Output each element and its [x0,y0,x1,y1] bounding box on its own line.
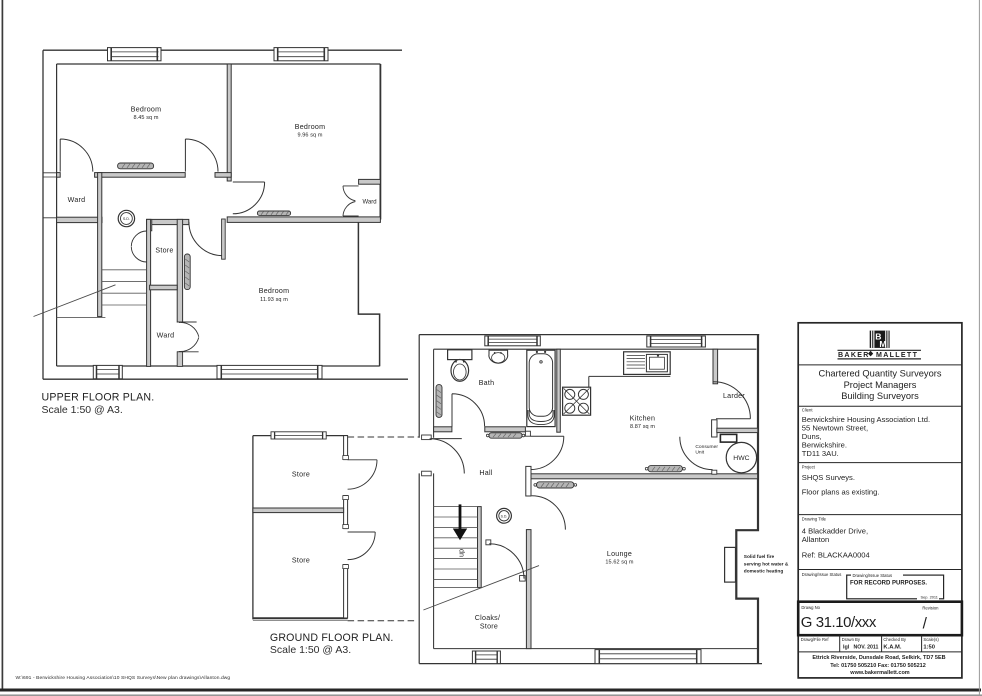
svg-text:Floor plans as existing.: Floor plans as existing. [802,488,880,497]
svg-text:Bedroom: Bedroom [259,287,290,295]
svg-text:Tel: 01750 505210 Fax: 01: Tel: 01750 505210 Fax: 01750 505212 [830,663,926,669]
svg-text:Cloaks/: Cloaks/ [475,614,500,622]
svg-text:Kitchen: Kitchen [630,415,655,423]
svg-text:Drawing/Issue Status: Drawing/Issue Status [802,572,842,577]
svg-text:9.96 sq m: 9.96 sq m [297,133,322,139]
svg-text:Berwickshire Housing Associati: Berwickshire Housing Association Ltd. [802,415,930,424]
svg-text:Ref: BLACKAA0004: Ref: BLACKAA0004 [802,550,870,559]
svg-text:W:\691 - Berwickshire Housing: W:\691 - Berwickshire Housing Associatio… [16,675,231,681]
svg-text:S.D.: S.D. [123,217,130,221]
svg-text:Bedroom: Bedroom [131,106,162,114]
svg-text:K.A.M.: K.A.M. [883,645,901,651]
svg-text:11.93 sq m: 11.93 sq m [260,297,288,303]
svg-text:FOR RECORD PURPOSES.: FOR RECORD PURPOSES. [850,580,927,586]
svg-text:up: up [456,549,465,557]
svg-text:Revision: Revision [922,606,939,611]
svg-text:Allanton: Allanton [802,535,829,544]
svg-text:Store: Store [480,623,498,631]
svg-text:S.D.: S.D. [501,514,508,518]
svg-text:15.62 sq m: 15.62 sq m [605,560,634,566]
svg-text:NOV. 2011: NOV. 2011 [854,645,879,651]
svg-text:1:50: 1:50 [923,645,935,651]
svg-text:Building Surveyors: Building Surveyors [841,391,919,401]
svg-text:UPPER FLOOR PLAN.: UPPER FLOOR PLAN. [42,392,155,404]
svg-text:Store: Store [292,557,310,565]
svg-text:lgl: lgl [843,645,850,651]
svg-text:M: M [879,339,886,349]
svg-text:Ward: Ward [362,200,376,206]
svg-text:Sep. 2011: Sep. 2011 [921,595,938,600]
svg-text:Consumer: Consumer [695,444,718,450]
svg-text:Ward: Ward [157,332,175,340]
svg-text:Bath: Bath [479,379,495,387]
svg-text:SHQS Surveys.: SHQS Surveys. [802,473,855,482]
svg-text:Chartered Quantity Surveyors: Chartered Quantity Surveyors [819,369,942,379]
svg-text:8.87 sq m: 8.87 sq m [630,424,655,430]
svg-text:Scale 1:50 @ A3.: Scale 1:50 @ A3. [42,404,123,416]
svg-text:Drawing Title: Drawing Title [802,516,827,521]
svg-text:Scale(s): Scale(s) [923,637,939,642]
svg-text:Client: Client [802,407,814,412]
svg-text:Project Managers: Project Managers [844,380,917,390]
svg-text:Ward: Ward [68,196,86,204]
svg-text:Hall: Hall [479,469,492,477]
svg-text:G 31.10/xxx: G 31.10/xxx [801,614,877,631]
svg-text:domestic heating: domestic heating [744,568,784,574]
svg-text:BAKER: BAKER [838,351,870,359]
svg-text:Ettrick Riverside, Dunsdale Ro: Ettrick Riverside, Dunsdale Road, Selkir… [812,655,945,661]
svg-text:TD11 3AU.: TD11 3AU. [802,449,839,458]
svg-text:Project: Project [802,464,816,469]
svg-text:8.45 sq m: 8.45 sq m [133,115,158,121]
svg-text:GROUND FLOOR PLAN.: GROUND FLOOR PLAN. [270,632,394,644]
svg-text:/: / [923,615,928,632]
svg-text:Solid fuel fire: Solid fuel fire [744,554,775,560]
svg-text:4 Blackadder Drive,: 4 Blackadder Drive, [802,526,868,535]
svg-text:MALLETT: MALLETT [876,351,918,359]
svg-text:Unit: Unit [695,449,704,455]
svg-text:Drawg/File Ref: Drawg/File Ref [801,637,830,642]
svg-text:Store: Store [292,471,310,479]
svg-text:Drawn By: Drawn By [842,637,861,642]
svg-text:Scale 1:50 @ A3.: Scale 1:50 @ A3. [270,644,351,656]
svg-text:serving hot water &: serving hot water & [744,561,789,567]
svg-text:Drawg No: Drawg No [801,605,820,610]
svg-text:Checked By: Checked By [883,637,906,642]
svg-text:Store: Store [155,247,173,255]
svg-text:Lounge: Lounge [607,550,632,558]
svg-text:HWC: HWC [733,455,749,462]
svg-text:Bedroom: Bedroom [295,123,326,131]
svg-text:Larder: Larder [723,392,745,400]
svg-text:www.bakermallett.com: www.bakermallett.com [849,670,910,676]
svg-text:Drawing/Issue Status: Drawing/Issue Status [853,573,893,578]
